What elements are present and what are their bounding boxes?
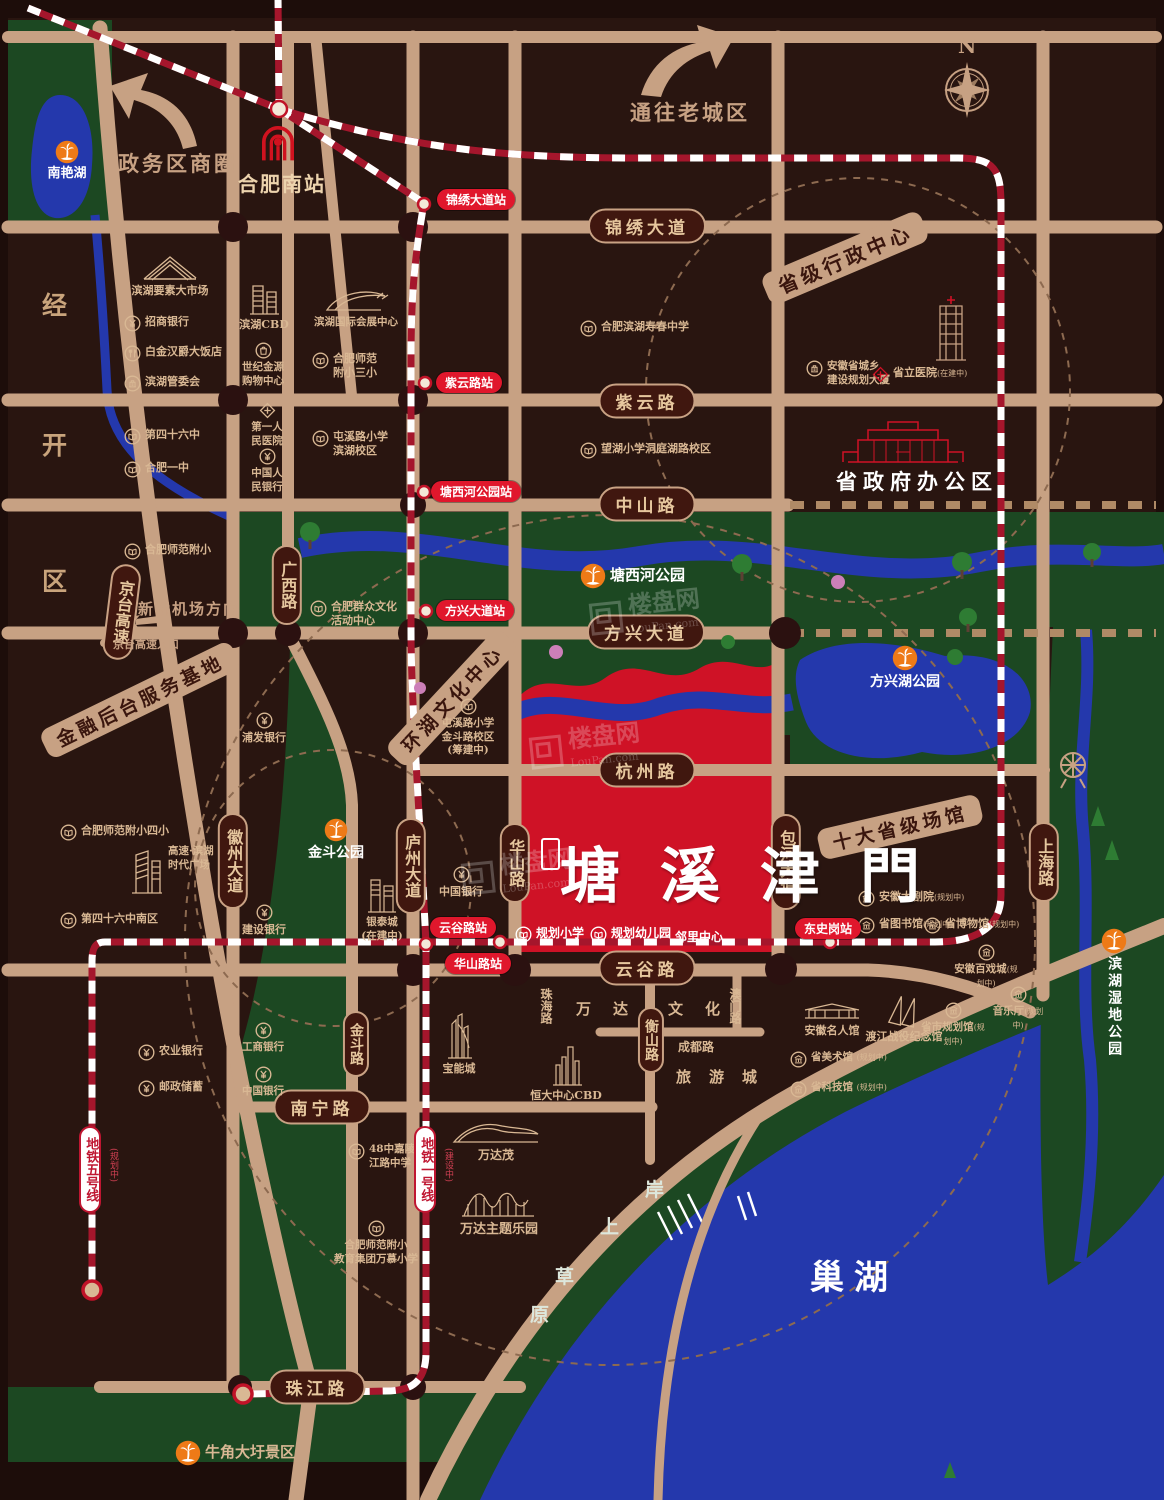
convention-center-art <box>319 286 393 314</box>
park-niujiao: 牛角大圩景区 <box>175 1440 295 1466</box>
poi-bjhj: 白金汉爵大饭店 <box>124 345 222 362</box>
road-ziyun: 紫云路 <box>599 384 696 419</box>
grass-char-shang: 上 <box>600 1212 619 1239</box>
old-town-label: 通往老城区 <box>630 97 750 127</box>
grass-char-cao: 草 <box>555 1262 574 1289</box>
poi-wanghu: 望湖小学洞庭湖路校区 <box>580 442 711 459</box>
government-icon <box>124 375 141 392</box>
poi-zgyh2: 中国银行 <box>236 1066 290 1099</box>
station-dsg: 东史岗站 <box>795 918 861 939</box>
school-icon <box>124 461 141 478</box>
school-icon <box>312 352 329 369</box>
school-icon <box>460 698 477 715</box>
station-fangxing: 方兴大道站 <box>436 600 514 621</box>
palm-icon <box>175 1440 201 1466</box>
poi-mingrenguan: 安徽名人馆 <box>796 1000 868 1038</box>
district-char-jing: 经 <box>42 286 67 322</box>
poi-bhgwh: 滨湖管委会 <box>124 375 200 392</box>
poi-bhcbd: 滨湖CBD <box>239 278 289 332</box>
cbd-towers-art <box>247 278 281 316</box>
poi-planned-school: 规划小学 <box>515 926 584 943</box>
district-char-kai: 开 <box>42 426 67 462</box>
school-icon <box>580 320 597 337</box>
bank-icon <box>256 904 273 921</box>
poi-wandapark: 万达主题乐园 <box>443 1178 555 1239</box>
poi-baixicheng: 安徽百戏城(规划中) <box>953 944 1019 990</box>
towers-art <box>442 1010 476 1060</box>
park-jindou: 金斗公园 <box>304 818 368 862</box>
government-icon <box>806 360 823 377</box>
poi-shouchun: 合肥滨湖寿春中学 <box>580 320 689 337</box>
bank-icon <box>138 1080 155 1097</box>
road-yungu: 云谷路 <box>599 951 696 986</box>
museum-icon <box>924 917 941 934</box>
park-tangxihe: 塘西河公园 <box>580 563 685 589</box>
road-zhongshan: 中山路 <box>599 487 696 522</box>
poi-kejiguan: 省科技馆 (规划中) <box>790 1081 887 1098</box>
poi-slyy: 省立医院(在建中) <box>872 366 967 383</box>
hefei-south-station-label: 合肥南站 <box>238 168 326 197</box>
area-wanda: 万达 <box>576 998 650 1019</box>
poi-sjjy: 世纪金源 购物中心 <box>232 342 294 388</box>
school-icon <box>580 442 597 459</box>
road-shanghai: 上海路 <box>1029 822 1059 902</box>
museum-icon <box>790 1081 807 1098</box>
coaster-art <box>460 1178 538 1220</box>
palm-icon <box>324 818 348 842</box>
metro-line1-label: 地铁一号线 <box>414 1126 436 1213</box>
poi-zsyh: 招商银行 <box>124 315 189 332</box>
museum-icon <box>1010 986 1027 1003</box>
market-roof-art <box>141 254 199 282</box>
gov-cbd-label: 政务区商圈 <box>118 148 238 178</box>
compass-n-label: N <box>958 34 976 58</box>
street-zhuhai: 珠海路 <box>538 988 555 1024</box>
hospital-icon <box>259 402 276 419</box>
bank-icon <box>255 1066 272 1083</box>
poi-sffx: 合肥师范附小 <box>124 543 211 560</box>
poi-planned-kindergarten: 规划幼儿园 <box>590 926 671 943</box>
bank-icon <box>259 448 276 465</box>
school-icon <box>60 824 77 841</box>
poi-d46z: 第四十六中 <box>124 428 200 445</box>
line1-terminal <box>234 1385 252 1403</box>
school-icon <box>124 428 141 445</box>
metro-line5-status: (规划中) <box>107 1148 120 1182</box>
railway-station-icon <box>258 120 298 164</box>
poi-pfyh: 浦发银行 <box>238 712 290 745</box>
poi-yzcx: 邮政储蓄 <box>138 1080 203 1097</box>
poi-gssd: 高速·滨湖 时代广场 <box>128 845 214 895</box>
palm-icon <box>892 645 918 671</box>
poi-d46zn: 第四十六中南区 <box>60 912 158 929</box>
site-logo: 塘溪津門 <box>560 828 960 915</box>
museum-icon <box>978 944 995 961</box>
palm-icon <box>55 140 79 164</box>
line5-terminal <box>83 1281 101 1299</box>
poi-baoneng: 宝能城 <box>428 1010 490 1076</box>
road-zhujiang: 珠江路 <box>269 1370 366 1405</box>
museum-icon <box>790 1051 807 1068</box>
culture-icon <box>310 600 327 617</box>
shopping-icon <box>255 342 272 359</box>
watermark-logo-icon <box>529 734 564 769</box>
poi-sfsx: 合肥师范 附小三小 <box>312 352 377 381</box>
school-icon <box>590 926 607 943</box>
airport-label: 新桥机场方向 <box>138 598 240 619</box>
wandamao-art <box>450 1118 542 1146</box>
poi-hzzx: 滨湖国际会展中心 <box>307 286 405 330</box>
towers-art <box>128 845 164 895</box>
road-jindou: 金斗路 <box>343 1011 369 1077</box>
poi-txl-jdl: 屯溪路小学 金斗路校区 (筹建中) <box>430 698 506 758</box>
hospital-icon <box>872 366 889 383</box>
park-shidi: 滨湖湿地公园 <box>1096 928 1132 1058</box>
poi-government-office-label: 省政府办公区 <box>836 466 998 496</box>
bank-icon <box>256 712 273 729</box>
museum-icon <box>945 1002 962 1019</box>
watermark-logo-icon <box>589 600 624 635</box>
school-icon <box>124 543 141 560</box>
park-fangxinghu: 方兴湖公园 <box>865 645 945 691</box>
poi-jsyh: 建设银行 <box>237 904 291 937</box>
monument-art <box>884 990 924 1028</box>
poi-dyrm: 第一人 民医院 <box>242 402 292 448</box>
area-lvyou: 旅游城 <box>676 1066 775 1087</box>
poi-neighborhood-center: 邻里中心 <box>675 930 723 946</box>
station-jinxiu: 锦绣大道站 <box>437 189 515 210</box>
poi-wandamao: 万达茂 <box>445 1118 547 1164</box>
poi-hfyz: 合肥一中 <box>124 461 189 478</box>
palm-icon <box>1101 928 1127 954</box>
poi-zgrmyh: 中国人 民银行 <box>242 448 292 494</box>
poi-dujiang: 渡江战役纪念馆 <box>862 990 946 1044</box>
school-icon <box>348 1143 365 1160</box>
road-huizhou: 徽州大道 <box>218 813 248 909</box>
grass-char-an: 岸 <box>645 1175 664 1202</box>
poi-hengda: 恒大中心CBD <box>525 1035 607 1103</box>
grass-char-yuan: 原 <box>530 1300 549 1327</box>
poi-yinyueting: 音乐厅(规划中) <box>989 986 1047 1032</box>
towers-art <box>548 1035 584 1087</box>
poi-ysdsc: 滨湖要素大市场 <box>122 254 218 298</box>
poi-bowuguan: 省博物馆(规划中) <box>924 917 1019 934</box>
road-guangxi: 广西路 <box>272 545 302 625</box>
station-txh: 塘西河公园站 <box>431 481 521 502</box>
park-nanyanhu: 南艳湖 <box>39 140 95 183</box>
station-ziyun: 紫云路站 <box>436 372 502 393</box>
station-yungu: 云谷路站 <box>430 917 496 938</box>
watermark-logo-icon <box>461 860 496 895</box>
jingtai-entry-label: 京台高速入口 <box>113 636 179 652</box>
bank-icon <box>138 1044 155 1061</box>
map-canvas: 省级行政中心 金融后台服务基地 环湖文化中心 十大省级场馆 政务区商圈 通往老城… <box>0 0 1164 1500</box>
school-icon <box>515 926 532 943</box>
area-wenhua: 文化 <box>668 998 742 1019</box>
school-icon <box>368 1220 385 1237</box>
road-jinxiu: 锦绣大道 <box>588 209 706 244</box>
poi-nyyh: 农业银行 <box>138 1044 203 1061</box>
poi-gsyh: 工商银行 <box>236 1022 290 1055</box>
poi-txlxx: 屯溪路小学 滨湖校区 <box>312 430 388 459</box>
towers-art <box>365 870 399 914</box>
poi-meishuguan: 省美术馆 (规划中) <box>790 1051 887 1068</box>
metro-line1-status: (建设中) <box>442 1148 455 1182</box>
station-huashan: 华山路站 <box>445 953 511 974</box>
poi-yintai: 银泰城 (在建中) <box>352 870 412 943</box>
poi-wanmu: 合肥师范附小 教育集团万慕小学 <box>320 1220 432 1266</box>
palm-icon <box>580 563 606 589</box>
bank-icon <box>124 315 141 332</box>
district-char-qu: 区 <box>42 562 67 598</box>
restaurant-icon <box>124 345 141 362</box>
chaohu-label: 巢湖 <box>810 1250 898 1299</box>
metro-line5-label: 地铁五号线 <box>79 1126 101 1213</box>
pavilion-art <box>801 1000 863 1022</box>
poi-sffx4: 合肥师范附小四小 <box>60 824 169 841</box>
poi-qunzhong: 合肥群众文化 活动中心 <box>310 600 397 629</box>
school-icon <box>60 912 77 929</box>
poi-z48: 48中嘉陵 江路中学 <box>348 1143 415 1170</box>
school-icon <box>312 430 329 447</box>
street-chengdu: 成都路 <box>678 1038 714 1055</box>
bank-icon <box>255 1022 272 1039</box>
